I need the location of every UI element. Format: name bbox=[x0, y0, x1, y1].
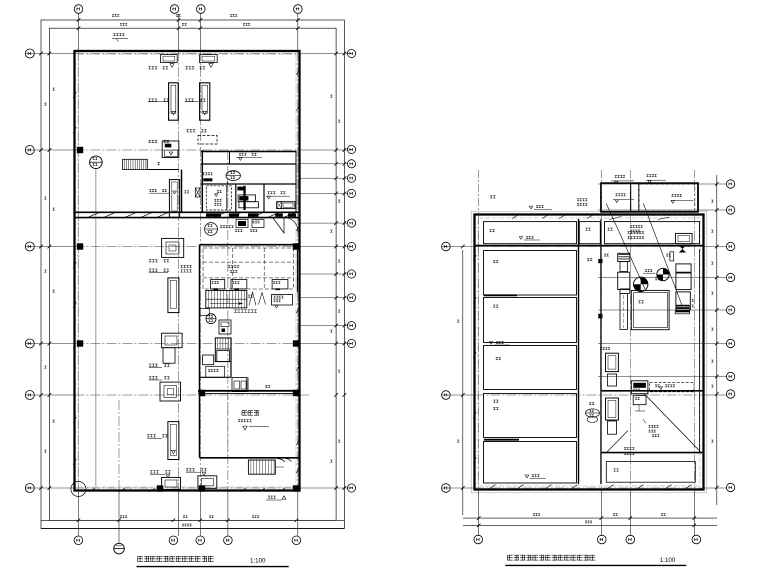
svg-text:1:100: 1:100 bbox=[250, 557, 266, 564]
svg-text:1:100: 1:100 bbox=[660, 557, 676, 564]
